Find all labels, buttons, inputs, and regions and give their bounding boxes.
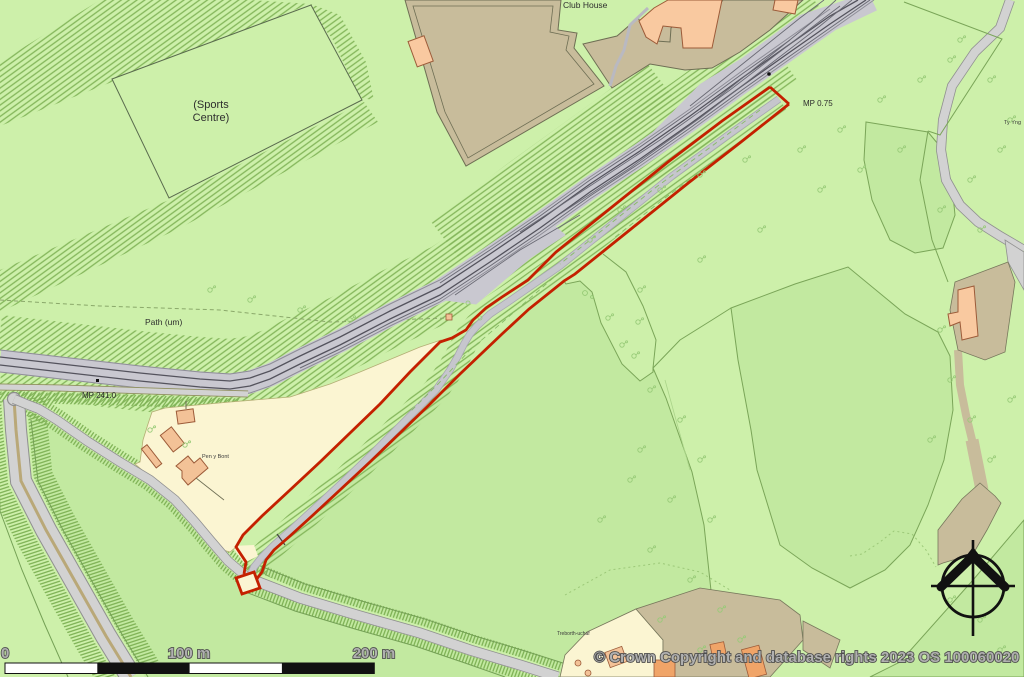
svg-text:Centre): Centre) [193, 112, 230, 124]
svg-text:Pen y Bont: Pen y Bont [202, 454, 229, 460]
svg-text:0: 0 [1, 645, 9, 662]
svg-text:(Sports: (Sports [193, 99, 229, 111]
svg-text:100 m: 100 m [168, 645, 211, 662]
svg-text:© Crown Copyright and database: © Crown Copyright and database rights 20… [594, 649, 1019, 666]
svg-text:Treborth-uchaf: Treborth-uchaf [557, 631, 590, 637]
svg-text:MP 0.75: MP 0.75 [803, 99, 833, 108]
svg-text:Ty Yng: Ty Yng [1004, 120, 1021, 126]
svg-text:Club House: Club House [563, 0, 608, 10]
svg-text:200 m: 200 m [353, 645, 396, 662]
svg-text:Path (um): Path (um) [145, 317, 182, 327]
svg-text:MP 241.0: MP 241.0 [82, 391, 117, 400]
